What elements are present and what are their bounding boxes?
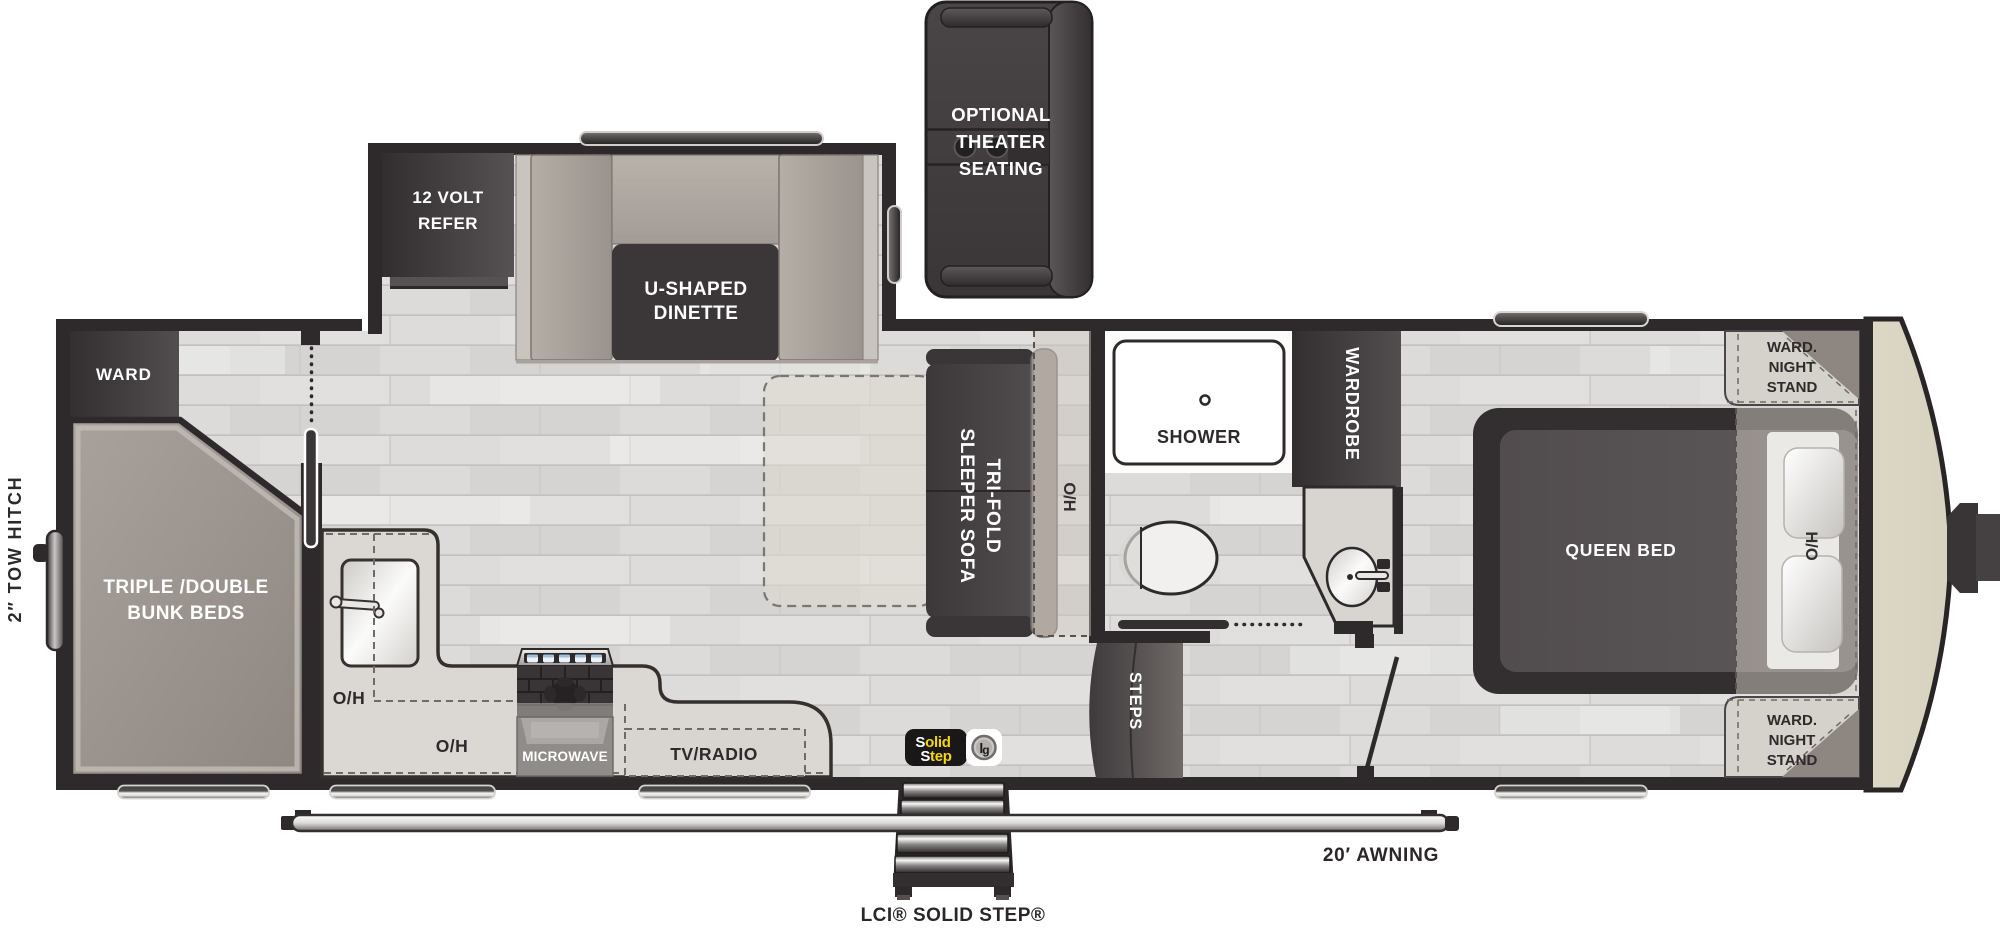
svg-text:WARD: WARD	[96, 365, 152, 384]
svg-text:NIGHT: NIGHT	[1769, 359, 1816, 376]
svg-text:QUEEN BED: QUEEN BED	[1565, 540, 1676, 560]
svg-text:H/O: H/O	[1802, 531, 1820, 561]
svg-text:THEATER: THEATER	[956, 131, 1046, 152]
svg-text:OPTIONAL: OPTIONAL	[951, 104, 1051, 125]
svg-text:2″ TOW HITCH: 2″ TOW HITCH	[5, 476, 25, 623]
svg-text:STAND: STAND	[1767, 379, 1818, 396]
svg-text:NIGHT: NIGHT	[1769, 732, 1816, 749]
svg-text:O/H: O/H	[1060, 482, 1078, 511]
svg-text:WARDROBE: WARDROBE	[1342, 347, 1362, 460]
svg-text:STEPS: STEPS	[1126, 672, 1144, 730]
svg-text:12 VOLT: 12 VOLT	[412, 188, 483, 207]
svg-text:lg: lg	[979, 740, 989, 757]
svg-text:BUNK BEDS: BUNK BEDS	[127, 603, 244, 624]
svg-text:20′ AWNING: 20′ AWNING	[1323, 845, 1439, 866]
svg-text:TRIPLE /DOUBLE: TRIPLE /DOUBLE	[103, 577, 268, 598]
svg-text:TV/RADIO: TV/RADIO	[670, 744, 758, 764]
svg-text:LCI® SOLID STEP®: LCI® SOLID STEP®	[861, 905, 1046, 926]
svg-text:O/H: O/H	[333, 688, 366, 708]
svg-text:DINETTE: DINETTE	[654, 303, 739, 324]
svg-text:SHOWER: SHOWER	[1157, 427, 1241, 447]
svg-text:WARD.: WARD.	[1767, 339, 1817, 356]
svg-text:U-SHAPED: U-SHAPED	[644, 279, 747, 300]
svg-text:STAND: STAND	[1767, 752, 1818, 769]
svg-text:MICROWAVE: MICROWAVE	[522, 749, 608, 764]
svg-text:Step: Step	[920, 748, 951, 765]
svg-text:SEATING: SEATING	[959, 158, 1043, 179]
svg-text:WARD.: WARD.	[1767, 712, 1817, 729]
svg-text:REFER: REFER	[418, 214, 478, 233]
svg-text:O/H: O/H	[436, 736, 469, 756]
